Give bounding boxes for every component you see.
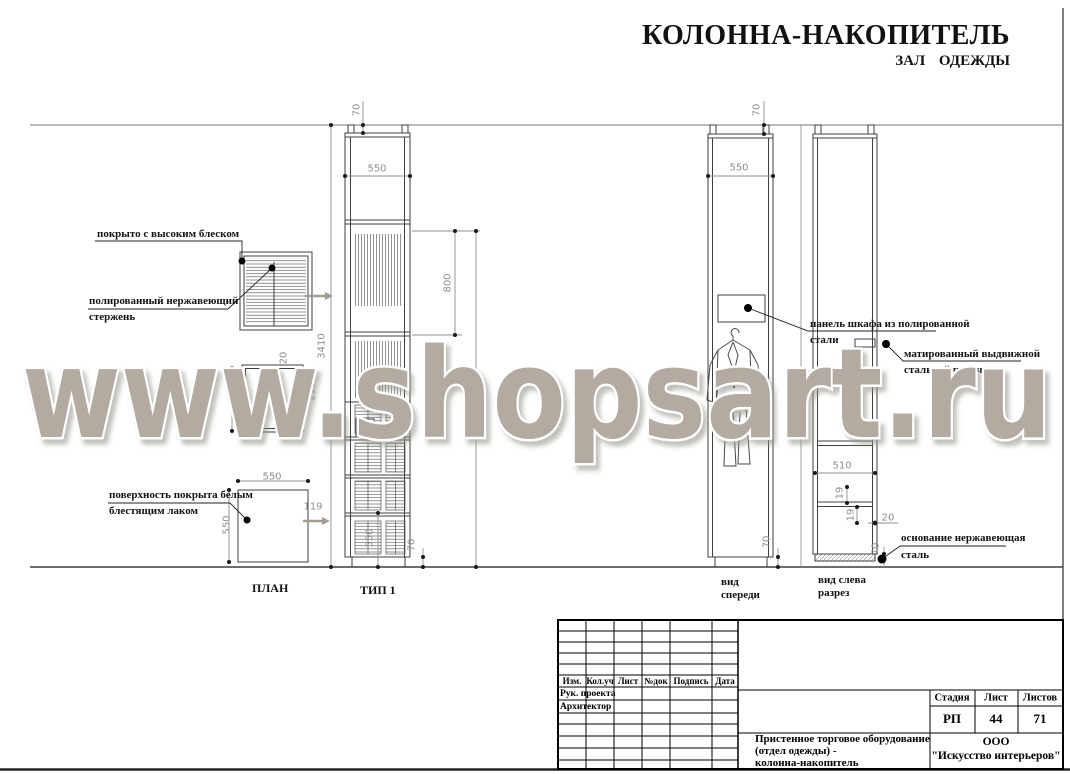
callout-base-line1: основание нержавеющая: [901, 532, 1025, 544]
tb-description-line2: (отдел одежды) -: [755, 745, 836, 757]
cabinet-panel: [718, 295, 765, 322]
dimension-lines: [227, 101, 898, 569]
dim-front-mount: 70: [752, 104, 763, 117]
plan-square-hatched: [240, 252, 312, 330]
page-subtitle: ЗАЛ ОДЕЖДЫ: [895, 53, 1010, 70]
tb-header-list: Лист: [618, 676, 638, 686]
tb-header-data: Дата: [715, 676, 735, 686]
tb-company-line2: "Искусство интерьеров": [932, 750, 1061, 762]
dim-type1-width: 550: [367, 164, 386, 175]
callout-drawer-line2: стальной поручень: [904, 364, 999, 376]
dim-section-inner-width: 510: [832, 461, 851, 472]
label-front-line1: вид: [721, 576, 739, 588]
callout-lacquer-line1: поверхность покрыта белым: [109, 489, 253, 501]
tb-header-podpis: Подпись: [674, 676, 709, 686]
callout-panel-line1: панель шкафа из полированной: [810, 318, 970, 330]
tb-header-izm: Изм.: [563, 676, 582, 686]
callout-drawer-line1: матированный выдвижной: [904, 348, 1040, 360]
tb-header-ndok: №док: [644, 676, 667, 686]
label-front-line2: спереди: [721, 589, 760, 601]
callout-rod-line2: стержень: [89, 311, 135, 323]
tb-stage-label: Стадия: [934, 693, 969, 704]
plan-square-middle: [242, 365, 303, 432]
column-front-view: [707, 125, 773, 567]
dim-type1-hanging: 800: [443, 273, 454, 292]
callout-gloss: покрыто с высоким блеском: [97, 228, 239, 240]
tb-sheets-value: 71: [1034, 711, 1047, 727]
dim-front-plinth: 70: [762, 536, 773, 549]
label-type1: ТИП 1: [360, 583, 396, 598]
callout-panel-line2: стали: [810, 334, 839, 346]
drawing-canvas: [0, 0, 1070, 774]
label-plan: ПЛАН: [252, 581, 288, 596]
dim-section-gap-bottom: 19: [846, 509, 857, 522]
page-title: КОЛОННА-НАКОПИТЕЛЬ: [642, 20, 1010, 52]
callout-rod-line1: полированный нержавеющий: [89, 295, 238, 307]
dim-front-width: 550: [729, 163, 748, 174]
dim-type1-total-height: 3410: [317, 333, 328, 358]
suit-drawing: [707, 329, 761, 466]
tb-sheet-value: 44: [990, 711, 1003, 727]
tb-role-architect: Архитектор: [560, 702, 611, 712]
label-section-line2: разрез: [818, 587, 849, 599]
dim-plan-offset: 119: [303, 502, 322, 513]
callout-lacquer-line2: блестящим лаком: [109, 505, 198, 517]
dim-plan-rod-offset: 119: [307, 382, 318, 401]
dim-type1-bottom: 550: [365, 528, 376, 547]
drawing-sheet: КОЛОННА-НАКОПИТЕЛЬ ЗАЛ ОДЕЖДЫ 70 550 800…: [0, 0, 1070, 774]
dim-section-base: 70: [871, 543, 882, 556]
callout-base-line2: сталь: [901, 549, 929, 561]
tb-sheet-label: Лист: [984, 693, 1008, 704]
column-section-view: [801, 125, 877, 567]
dim-section-edge: 20: [882, 513, 895, 524]
dim-plan-width: 550: [262, 472, 281, 483]
column-type1: [345, 125, 410, 567]
page-frame: [0, 8, 1070, 770]
dim-plan-frame: 20: [279, 352, 290, 365]
dim-plan-depth: 550: [222, 515, 233, 534]
dim-type1-mount: 70: [352, 104, 363, 117]
tb-header-koluch: Кол.уч: [586, 676, 613, 686]
tb-role-manager: Рук. проекта: [560, 689, 616, 699]
label-section-line1: вид слева: [818, 574, 866, 586]
tb-description-line3: колонна-накопитель: [755, 757, 859, 769]
tb-company-line1: ООО: [983, 736, 1010, 748]
dim-type1-plinth: 70: [407, 539, 418, 552]
dim-section-gap-top: 19: [835, 487, 846, 500]
tb-sheets-label: Листов: [1023, 693, 1057, 704]
tb-stage-value: РП: [943, 711, 961, 727]
tb-description-line1: Пристенное торговое оборудование: [755, 733, 930, 745]
